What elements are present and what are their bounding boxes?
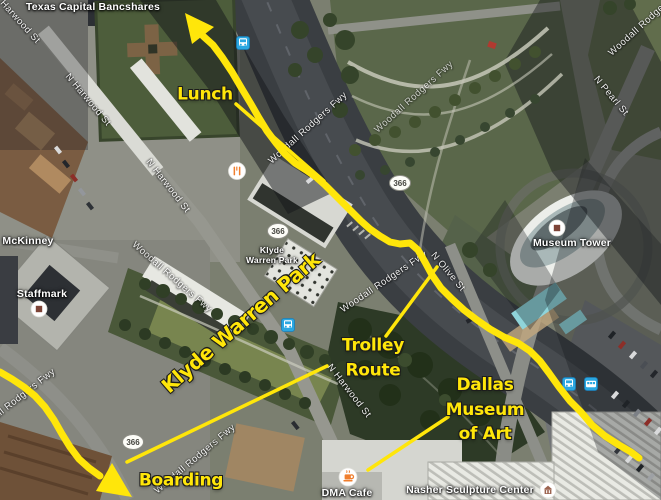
trolley-route-line bbox=[127, 366, 327, 462]
shield-number: 366 bbox=[126, 438, 140, 447]
annotation-overlay: 366366366 bbox=[0, 0, 661, 500]
route-shield-366-c[interactable]: 366 bbox=[123, 435, 144, 450]
transit-station-icon-north[interactable] bbox=[237, 37, 250, 50]
dma-leader-line bbox=[368, 417, 448, 470]
poi-icon-layer: 366366366 bbox=[31, 37, 598, 499]
transit-station-icon-park[interactable] bbox=[282, 319, 295, 332]
route-shield-366-a[interactable]: 366 bbox=[268, 224, 289, 239]
staffmark-icon[interactable] bbox=[31, 301, 47, 317]
restaurant-icon[interactable] bbox=[229, 163, 246, 180]
dma-cafe-icon[interactable] bbox=[339, 468, 357, 486]
boarding-route bbox=[0, 372, 100, 476]
satellite-map[interactable]: Harwood StN Harwood StN Harwood StN Harw… bbox=[0, 0, 661, 500]
route-shield-366-b[interactable]: 366 bbox=[390, 176, 411, 191]
transit-station-icon-east-2[interactable] bbox=[585, 378, 598, 391]
trolley-leader-line bbox=[386, 267, 437, 336]
shield-number: 366 bbox=[393, 179, 407, 188]
route-layer bbox=[0, 13, 639, 497]
shield-number: 366 bbox=[271, 227, 285, 236]
nasher-icon[interactable] bbox=[540, 482, 556, 498]
museum-tower-icon[interactable] bbox=[549, 220, 565, 236]
boarding-arrowhead bbox=[96, 463, 132, 497]
